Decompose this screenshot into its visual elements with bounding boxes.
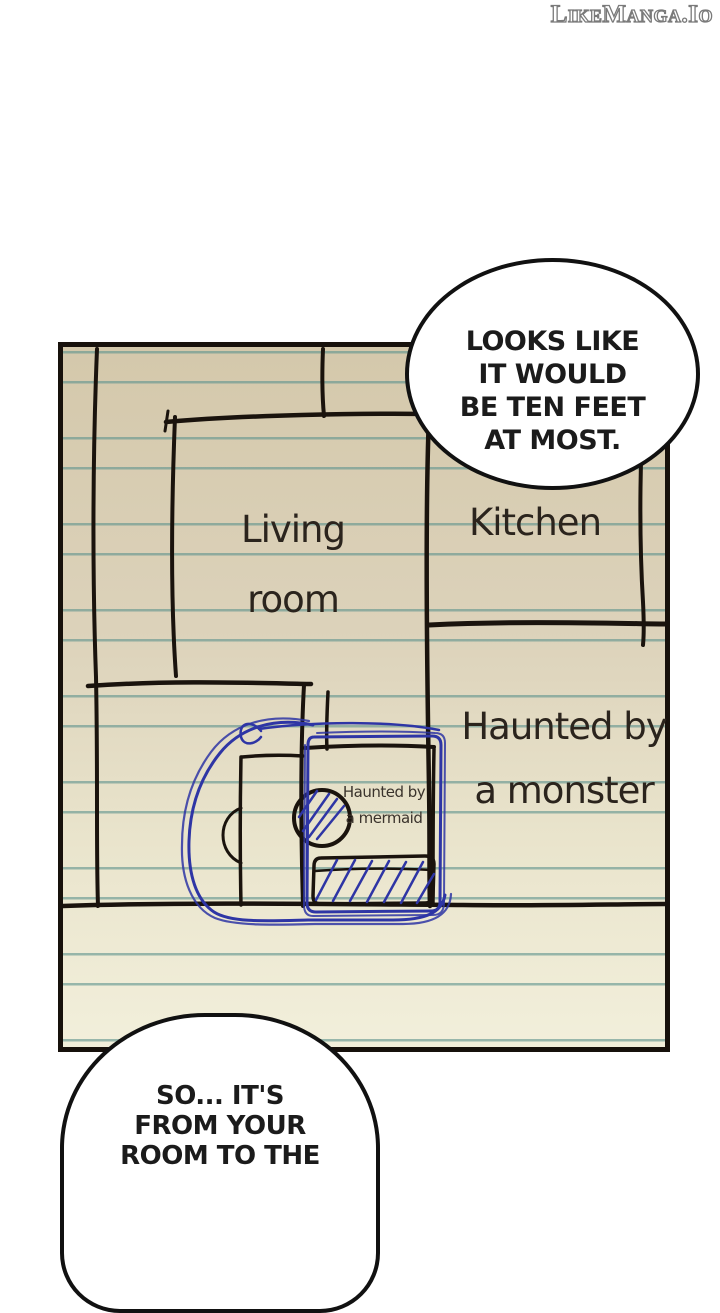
mermaid-label-line1: Haunted by bbox=[317, 779, 451, 805]
bed-rectangle bbox=[313, 856, 434, 904]
wall-short-vertical bbox=[327, 692, 328, 749]
wall-left bbox=[93, 349, 98, 906]
living-room-label-line2: room bbox=[188, 565, 398, 635]
speech-bubble-bottom: SO... IT'S FROM YOUR ROOM TO THE bbox=[60, 1013, 380, 1313]
wall-closet-vertical bbox=[240, 757, 241, 905]
wall-kitchen-bottom bbox=[429, 623, 665, 625]
speech-top-line3: BE TEN FEET bbox=[409, 391, 696, 424]
monster-label-line1: Haunted by bbox=[458, 695, 670, 759]
manga-page: { "watermark": { "text": "LikeManga.Io" … bbox=[0, 0, 720, 1152]
speech-top-line1: LOOKS LIKE bbox=[409, 325, 696, 358]
wall-bottomleft-room-top bbox=[88, 682, 311, 686]
speech-top-line2: IT WOULD bbox=[409, 358, 696, 391]
wall-living-top bbox=[166, 414, 431, 422]
kitchen-label: Kitchen bbox=[430, 488, 640, 558]
speech-bubble-top: LOOKS LIKE IT WOULD BE TEN FEET AT MOST. bbox=[405, 258, 700, 490]
speech-bottom-line2: FROM YOUR bbox=[64, 1111, 376, 1141]
site-watermark: LikeManga.Io bbox=[551, 1, 713, 29]
wall-mermaid-top bbox=[305, 746, 434, 748]
kitchen-label-text: Kitchen bbox=[430, 488, 640, 558]
speech-bottom-line3: ROOM TO THE bbox=[64, 1141, 376, 1171]
wall-closet-horizontal bbox=[242, 755, 303, 757]
living-room-label: Living room bbox=[188, 495, 398, 635]
wall-top-left-vertical bbox=[322, 349, 324, 416]
wall-corner-tick bbox=[165, 411, 168, 431]
living-room-label-line1: Living bbox=[188, 495, 398, 565]
monster-label-line2: a monster bbox=[458, 759, 670, 823]
speech-bottom-line1: SO... IT'S bbox=[64, 1081, 376, 1111]
mermaid-label-line2: a mermaid bbox=[317, 805, 451, 831]
speech-top-line4: AT MOST. bbox=[409, 424, 696, 457]
mermaid-room-label: Haunted by a mermaid bbox=[317, 779, 451, 831]
blue-bed-hatch bbox=[316, 860, 434, 903]
wall-living-left bbox=[172, 417, 176, 676]
blue-top-band bbox=[259, 723, 439, 730]
door-arc bbox=[223, 808, 241, 863]
monster-room-label: Haunted by a monster bbox=[458, 695, 670, 823]
